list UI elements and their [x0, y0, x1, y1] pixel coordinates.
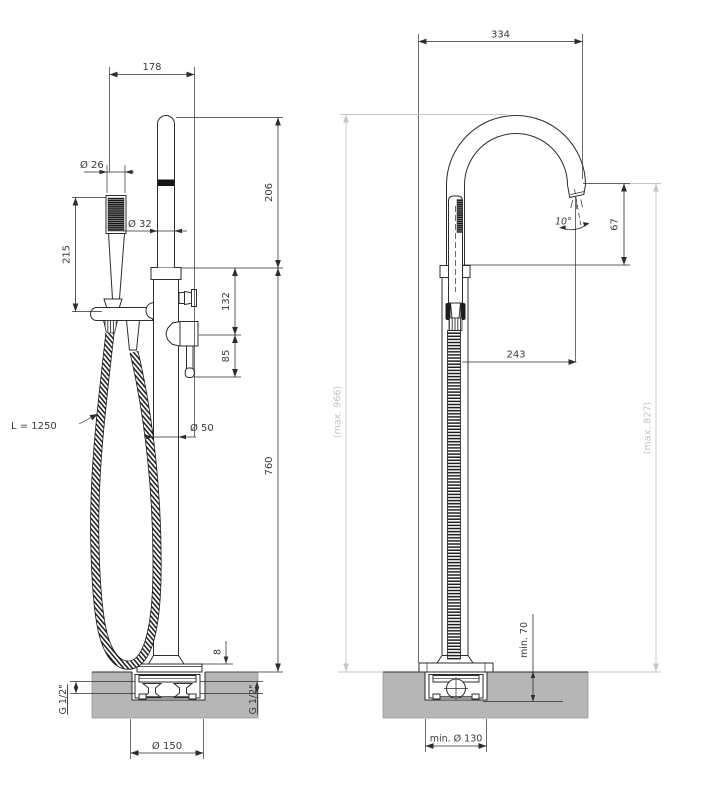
side-floor-section	[383, 671, 588, 718]
shower-hose	[95, 333, 157, 665]
technical-drawing-page: 178 Ø 26 215 Ø 32 206	[0, 0, 706, 800]
column-diameter-label: Ø 50	[190, 422, 214, 434]
spout-angle-label: 10°	[555, 217, 572, 228]
max-height-spout-label: (max. 827)	[643, 402, 654, 454]
spout-pipe-diameter-label: Ø 32	[128, 218, 152, 230]
dim-connection-right: G 1/2"	[248, 684, 259, 714]
dim-upper-section-height: 206	[176, 118, 283, 269]
diverter-offset-label: 132	[221, 292, 232, 311]
spout-to-column-top-label: 67	[610, 218, 621, 231]
dim-base-diameter: Ø 150	[131, 719, 204, 759]
dim-handshower-length: 215	[62, 198, 107, 312]
front-riser-band	[158, 180, 175, 187]
holder-ear-left	[446, 303, 451, 320]
hose-length-label: L = 1250	[11, 421, 57, 432]
dim-spout-to-column-top: 67	[463, 184, 630, 266]
side-view: 334 10° 67 243 (max. 966) (ma	[333, 30, 662, 753]
front-column-collar	[151, 268, 181, 280]
upper-section-height-label: 206	[264, 183, 275, 202]
dim-base-plate-thickness: 8	[202, 641, 233, 664]
front-top-width-label: 178	[142, 62, 161, 73]
connection-left-label: G 1/2"	[58, 684, 69, 714]
dim-spout-angle: 10°	[555, 189, 589, 362]
dim-connection-left: G 1/2"	[58, 684, 69, 714]
dim-hose-length: L = 1250	[11, 414, 98, 432]
connection-right-label: G 1/2"	[248, 684, 259, 714]
hand-shower	[104, 196, 126, 311]
holder-ear-right	[461, 303, 466, 320]
side-hose-nut	[449, 318, 462, 331]
front-base-plate	[137, 664, 202, 672]
dim-column-height: 760	[264, 268, 278, 672]
base-diameter-label: Ø 150	[152, 740, 182, 752]
holder-arm	[91, 308, 153, 321]
spout-reach-overall-label: 334	[491, 30, 510, 41]
handshower-diameter-label: Ø 26	[80, 159, 104, 171]
side-hose-coil	[448, 331, 461, 660]
dim-spout-pipe-diameter: Ø 32	[123, 218, 187, 233]
technical-drawing: 178 Ø 26 215 Ø 32 206	[0, 0, 706, 800]
handle-drop-label: 85	[221, 350, 232, 363]
dim-handshower-diameter: Ø 26	[80, 159, 134, 193]
min-recess-diameter-label: min. Ø 130	[430, 734, 483, 745]
dim-diverter-offset: 132	[199, 268, 241, 335]
hose-nut-right	[127, 321, 140, 351]
dim-min-recess-diameter: min. Ø 130	[426, 719, 487, 752]
dim-spout-reach: 243	[462, 350, 577, 363]
front-view: 178 Ø 26 215 Ø 32 206	[11, 62, 283, 759]
max-height-handshower-label: (max. 966)	[333, 386, 344, 438]
min-floor-depth-label: min. 70	[519, 622, 530, 658]
front-riser-pipe	[158, 116, 175, 268]
side-base-plate	[419, 663, 493, 672]
base-plate-thickness-label: 8	[213, 649, 224, 655]
front-column-flare	[149, 656, 185, 665]
diverter-knob	[179, 290, 197, 307]
handshower-length-label: 215	[62, 245, 73, 264]
column-height-label: 760	[264, 456, 275, 475]
hand-shower-handle	[109, 234, 125, 300]
dim-max-height-handshower: (max. 966)	[333, 115, 508, 672]
front-mounting-box	[135, 675, 200, 700]
spout-reach-label: 243	[506, 350, 525, 361]
gooseneck-spout	[447, 116, 586, 266]
dim-max-height-spout: (max. 827)	[630, 184, 661, 672]
dim-handle-drop: 85	[194, 335, 241, 377]
hose-nut-left	[104, 321, 118, 334]
